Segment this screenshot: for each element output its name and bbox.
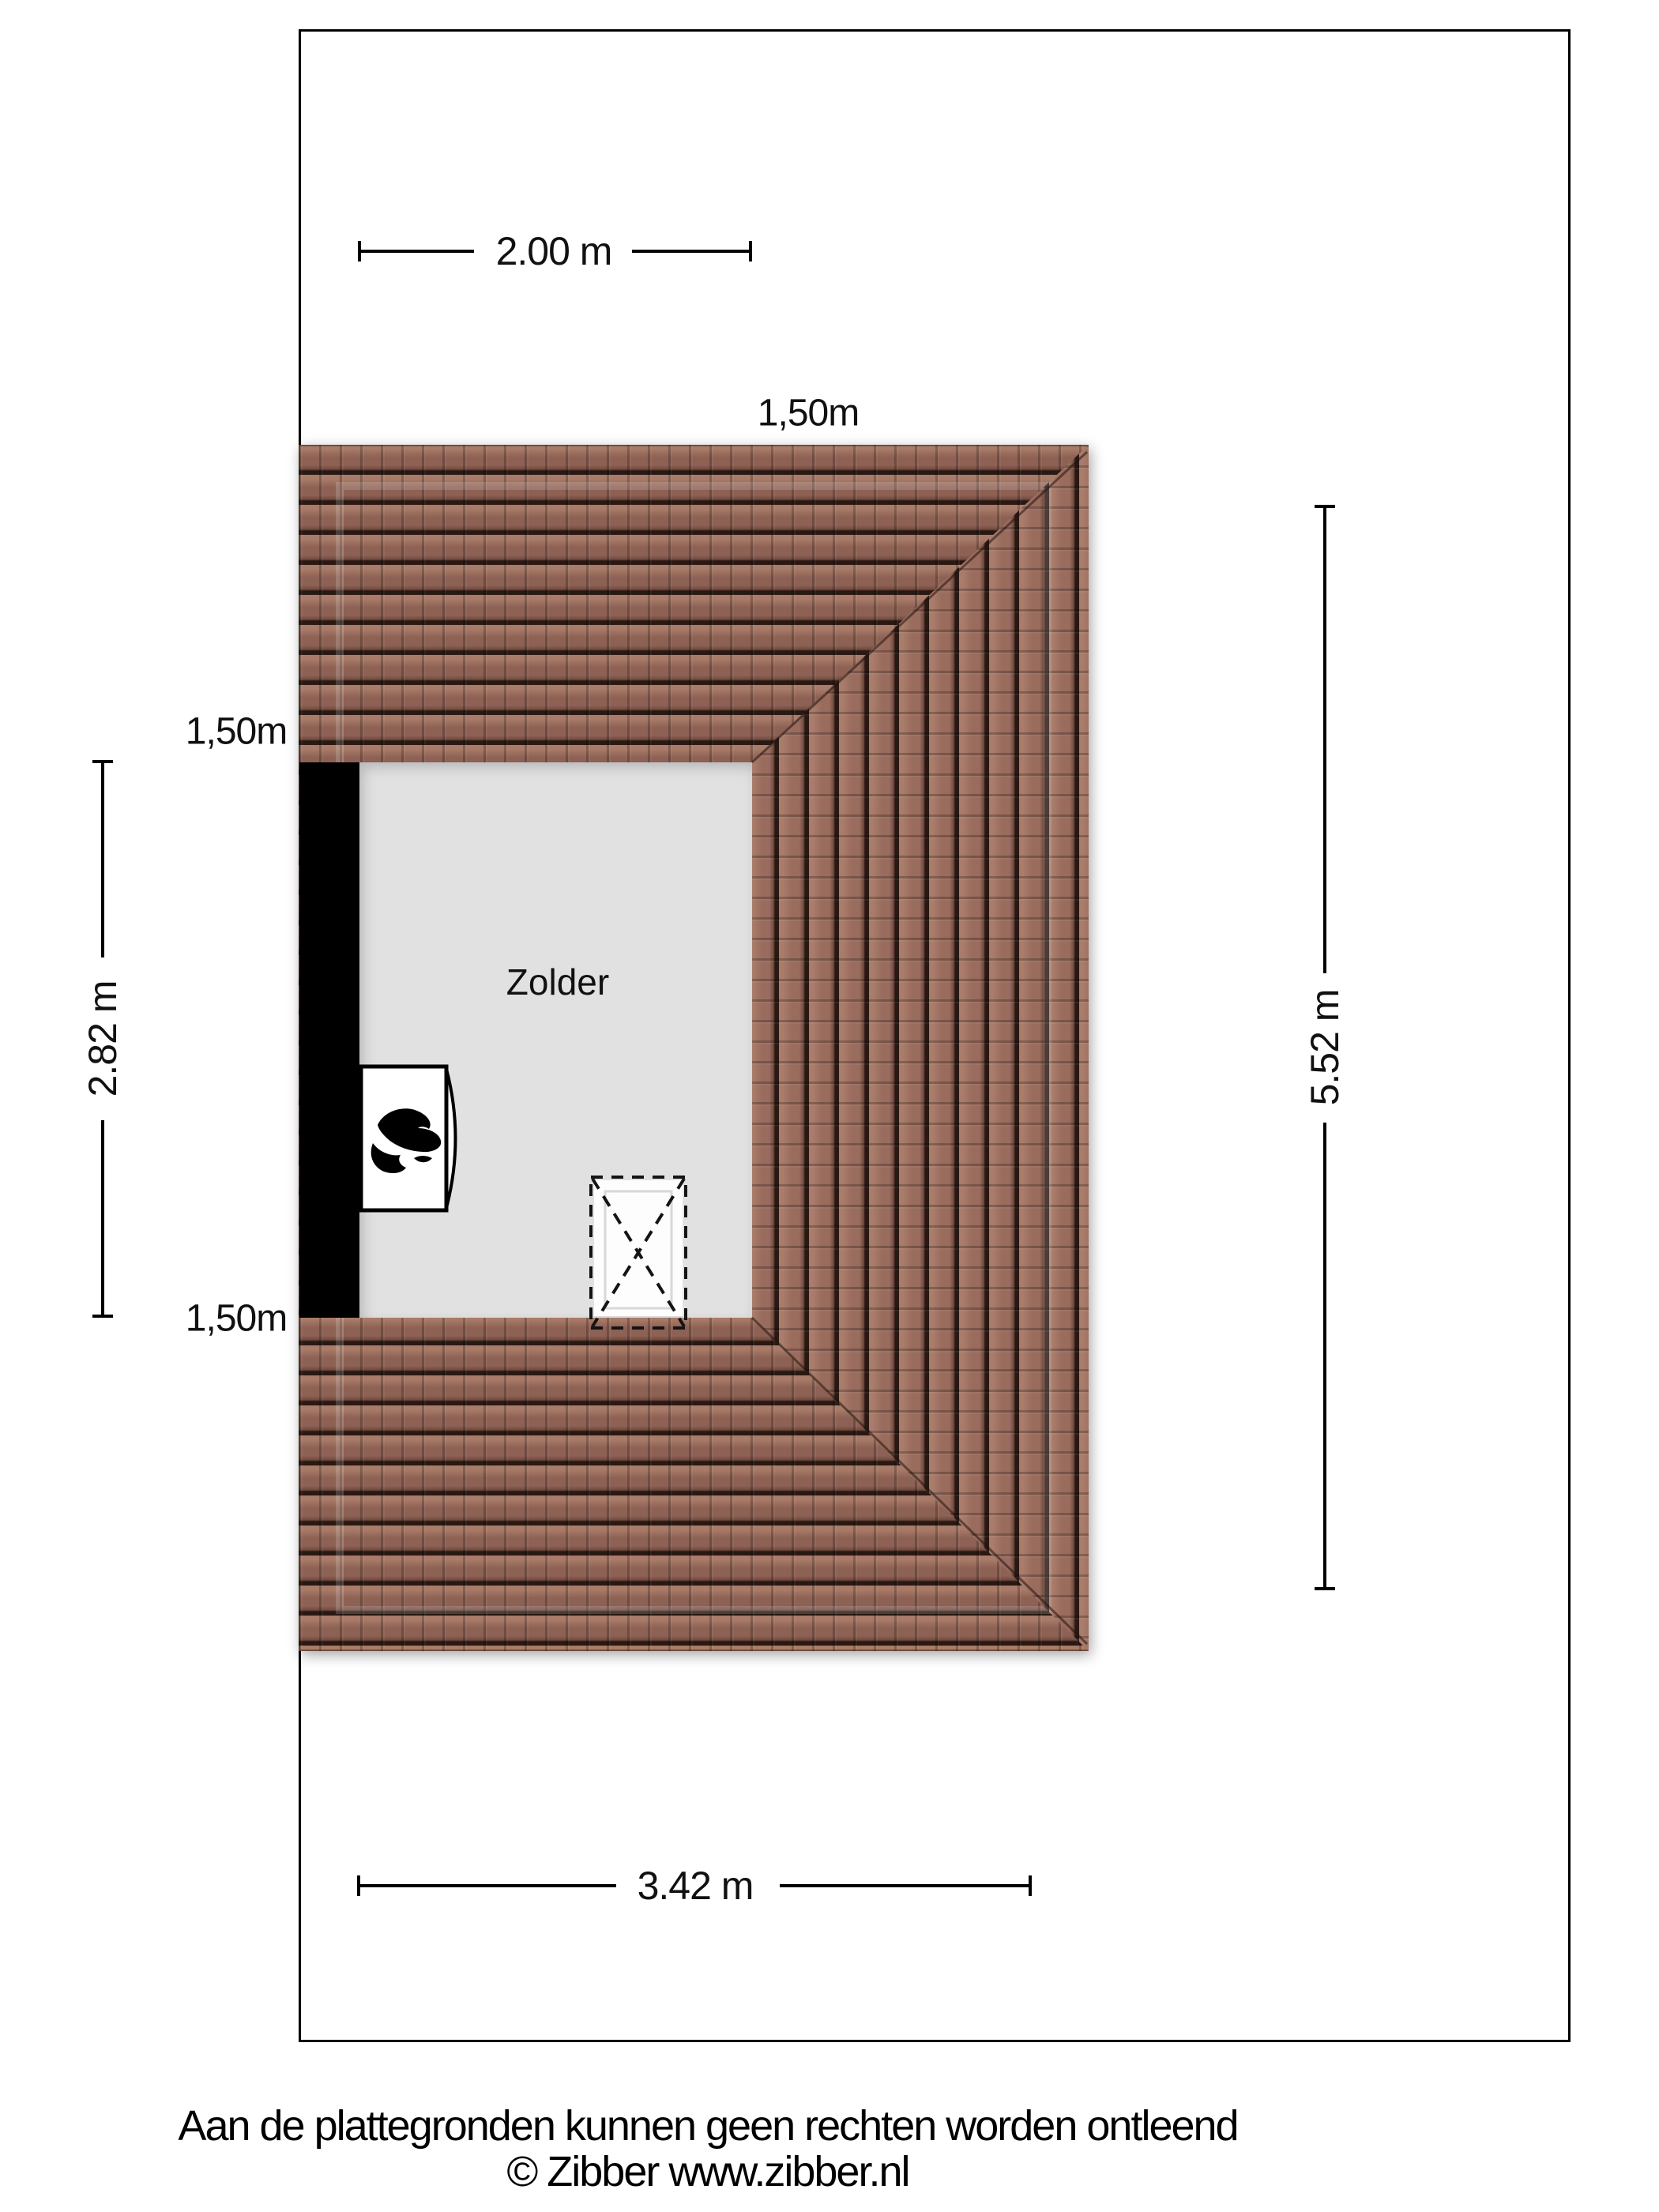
contour-label-left-lower: 1,50m (186, 1297, 287, 1341)
room-wall-left (299, 762, 359, 1318)
dimension-label-left: 2.82 m (80, 981, 126, 1097)
room-label: Zolder (506, 961, 609, 1003)
room-zolder (359, 762, 752, 1318)
dimension-label-top: 2.00 m (496, 228, 612, 274)
footer-disclaimer: Aan de plattegronden kunnen geen rechten… (178, 2101, 1237, 2150)
dimension-label-bottom: 3.42 m (638, 1863, 754, 1909)
dimension-label-right: 5.52 m (1302, 990, 1348, 1106)
floorplan-page: 2.00 m 3.42 m 2.82 m 5.52 m 1,50m 1,50m … (0, 0, 1659, 2212)
contour-label-left-upper: 1,50m (186, 710, 287, 754)
contour-label-top: 1,50m (758, 392, 859, 435)
footer-copyright: © Zibber www.zibber.nl (507, 2147, 909, 2196)
